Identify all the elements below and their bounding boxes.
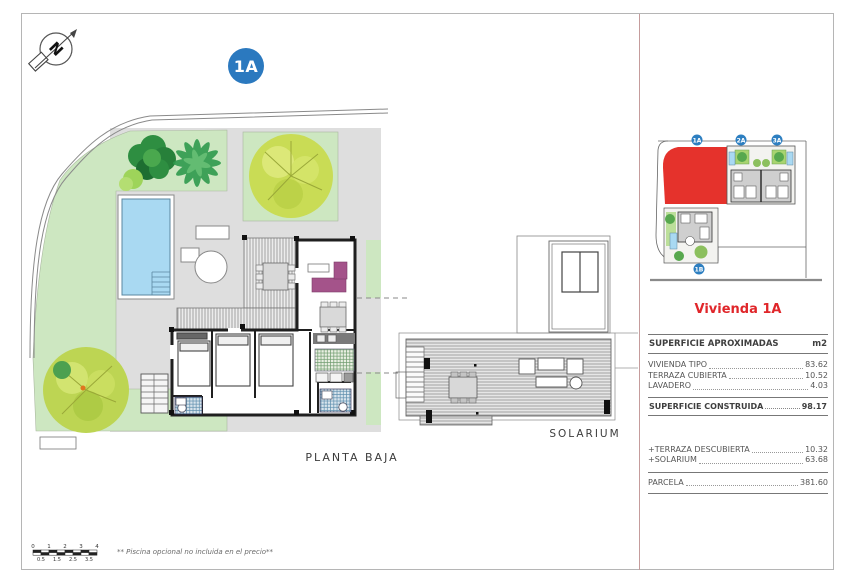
header-label: SUPERFICIE APROXIMADAS — [649, 339, 779, 349]
row-value: 10.52 — [805, 371, 828, 382]
dotted-leader — [686, 485, 798, 486]
row-label: TERRAZA CUBIERTA — [648, 371, 727, 382]
dotted-leader — [752, 452, 803, 453]
dotted-leader — [709, 368, 803, 369]
kitchen — [313, 333, 355, 382]
solarium-deck — [396, 333, 638, 425]
inset-badge-1a: 1A — [692, 135, 703, 146]
unit-badge-1a: 1A — [228, 48, 264, 84]
surface-rows: VIVIENDA TIPO 83.62 TERRAZA CUBIERTA 10.… — [648, 354, 828, 397]
dotted-leader — [699, 463, 803, 464]
inset-plots-2a-3a — [727, 146, 795, 204]
scale-bar: 0 1 2 3 4 0.5 1.5 2.5 3.5 — [31, 544, 99, 563]
garden-stairs — [141, 374, 168, 413]
svg-text:4: 4 — [95, 544, 99, 550]
svg-text:2: 2 — [63, 544, 67, 550]
inset-badge-2a: 2A — [736, 135, 747, 146]
svg-text:1A: 1A — [693, 137, 702, 144]
plan-sheet: N — [0, 0, 850, 582]
svg-text:3: 3 — [79, 544, 83, 550]
row-label: VIVIENDA TIPO — [648, 360, 707, 371]
table-row: +TERRAZA DESCUBIERTA 10.32 — [648, 445, 828, 456]
row-value: 4.03 — [810, 381, 828, 392]
north-arrow-icon: N — [29, 29, 77, 71]
row-value: 83.62 — [805, 360, 828, 371]
svg-text:0: 0 — [31, 544, 35, 550]
svg-text:2.5: 2.5 — [69, 557, 77, 563]
solarium-enclosure — [517, 236, 610, 333]
svg-text:1: 1 — [47, 544, 51, 550]
table-row: LAVADERO 4.03 — [648, 381, 828, 392]
table-row: TERRAZA CUBIERTA 10.52 — [648, 371, 828, 382]
total-label: SUPERFICIE CONSTRUIDA — [649, 402, 763, 411]
total-row: SUPERFICIE CONSTRUIDA 98.17 — [648, 397, 828, 416]
site-inset-map: 1A 2A 3A 1B — [650, 135, 822, 281]
row-label: PARCELA — [648, 478, 684, 489]
parcel-row: PARCELA 381.60 — [648, 472, 828, 495]
row-label: +SOLARIUM — [648, 455, 697, 466]
solarium-dining-set — [449, 372, 477, 403]
surface-table-header: SUPERFICIE APROXIMADAS m2 — [648, 334, 828, 354]
extras-rows: +TERRAZA DESCUBIERTA 10.32 +SOLARIUM 63.… — [648, 445, 828, 472]
svg-text:3.5: 3.5 — [85, 557, 93, 563]
villa-title: Vivienda 1A — [648, 302, 828, 317]
floorplan-drawing: N — [0, 0, 850, 582]
table-row: +SOLARIUM 63.68 — [648, 455, 828, 466]
row-value: 63.68 — [805, 455, 828, 466]
row-value: 381.60 — [800, 478, 828, 489]
svg-text:1.5: 1.5 — [53, 557, 61, 563]
planta-baja-label: PLANTA BAJA — [305, 451, 398, 464]
dotted-leader — [693, 389, 808, 390]
tree-yellow-bottom — [43, 347, 129, 433]
header-unit: m2 — [812, 339, 827, 349]
svg-text:0.5: 0.5 — [37, 557, 45, 563]
inset-badge-1b: 1B — [694, 264, 705, 275]
surface-info-panel: Vivienda 1A SUPERFICIE APROXIMADAS m2 VI… — [648, 302, 828, 494]
row-label: +TERRAZA DESCUBIERTA — [648, 445, 750, 456]
row-value: 10.32 — [805, 445, 828, 456]
outdoor-dining-set — [256, 263, 295, 290]
solarium-stairs — [396, 347, 424, 402]
bedrooms — [177, 333, 293, 386]
dotted-leader — [765, 408, 799, 409]
pool-footnote: ** Piscina opcional no incluida en el pr… — [110, 548, 280, 556]
svg-text:1B: 1B — [695, 266, 704, 273]
row-label: LAVADERO — [648, 381, 691, 392]
svg-text:2A: 2A — [737, 137, 746, 144]
svg-text:3A: 3A — [773, 137, 782, 144]
inset-plot-1b — [664, 208, 718, 263]
total-value: 98.17 — [802, 402, 827, 411]
dining-set — [320, 302, 346, 332]
tree-yellow-large — [249, 134, 333, 218]
inset-plot-1a-highlight — [663, 147, 727, 204]
dotted-leader — [729, 378, 803, 379]
table-row: VIVIENDA TIPO 83.62 — [648, 360, 828, 371]
solarium-label: SOLARIUM — [549, 428, 620, 440]
inset-badge-3a: 3A — [772, 135, 783, 146]
swimming-pool — [118, 195, 174, 299]
